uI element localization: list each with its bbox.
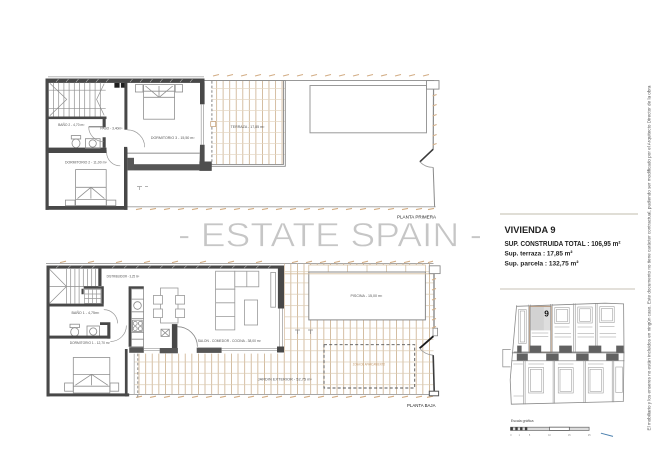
svg-text:9: 9 xyxy=(544,309,549,319)
svg-text:1: 1 xyxy=(519,434,521,437)
svg-text:El mobiliario y los enseres no: El mobiliario y los enseres no están inc… xyxy=(647,85,652,430)
svg-text:15: 15 xyxy=(568,434,571,437)
svg-text:PISCINA - 15,00 m²: PISCINA - 15,00 m² xyxy=(351,294,384,298)
svg-text:DORMITORIO 2 - 11,00 m²: DORMITORIO 2 - 11,00 m² xyxy=(65,161,108,165)
svg-text:PASO - 3,40m²: PASO - 3,40m² xyxy=(100,127,123,131)
svg-text:- ESTATE SPAIN -: - ESTATE SPAIN - xyxy=(178,216,482,254)
svg-text:BAÑO 2 - 4,70 m²: BAÑO 2 - 4,70 m² xyxy=(58,122,85,127)
svg-text:25: 25 xyxy=(588,434,591,437)
svg-text:Sup. terraza : 17,85 m²: Sup. terraza : 17,85 m² xyxy=(505,250,574,257)
svg-text:DORMITORIO 3 - 15,50 m²: DORMITORIO 3 - 15,50 m² xyxy=(151,136,196,140)
svg-text:5: 5 xyxy=(529,434,531,437)
svg-text:VIVIENDA 9: VIVIENDA 9 xyxy=(505,224,556,235)
svg-text:SUP. CONSTRUIDA TOTAL : 106,95: SUP. CONSTRUIDA TOTAL : 106,95 m² xyxy=(505,239,622,248)
svg-text:0: 0 xyxy=(510,434,512,437)
svg-text:TERRAZA - 17,85 m²: TERRAZA - 17,85 m² xyxy=(231,125,266,129)
svg-text:ZONA DE APARCAMIENTO: ZONA DE APARCAMIENTO xyxy=(353,363,386,367)
svg-text:DISTRIBUIDOR - 3,25 m²: DISTRIBUIDOR - 3,25 m² xyxy=(107,274,140,278)
svg-text:BAÑO 1 - 4,75m²: BAÑO 1 - 4,75m² xyxy=(72,310,101,315)
svg-text:10: 10 xyxy=(548,434,551,437)
svg-text:PLANTA BAJA: PLANTA BAJA xyxy=(407,403,436,408)
svg-text:Sup. parcela : 132,75 m²: Sup. parcela : 132,75 m² xyxy=(505,260,580,267)
svg-text:Escala gráfica: Escala gráfica xyxy=(511,419,534,423)
svg-text:SALON - COMEDOR - COCINA - 38,: SALON - COMEDOR - COCINA - 38,00 m² xyxy=(198,339,262,343)
svg-text:DORMITORIO 1 - 12,70 m²: DORMITORIO 1 - 12,70 m² xyxy=(70,341,111,345)
svg-text:JARDIN EXTERIOR - 52,75 m²: JARDIN EXTERIOR - 52,75 m² xyxy=(258,377,313,381)
svg-text:PLANTA PRIMERA: PLANTA PRIMERA xyxy=(397,215,436,220)
